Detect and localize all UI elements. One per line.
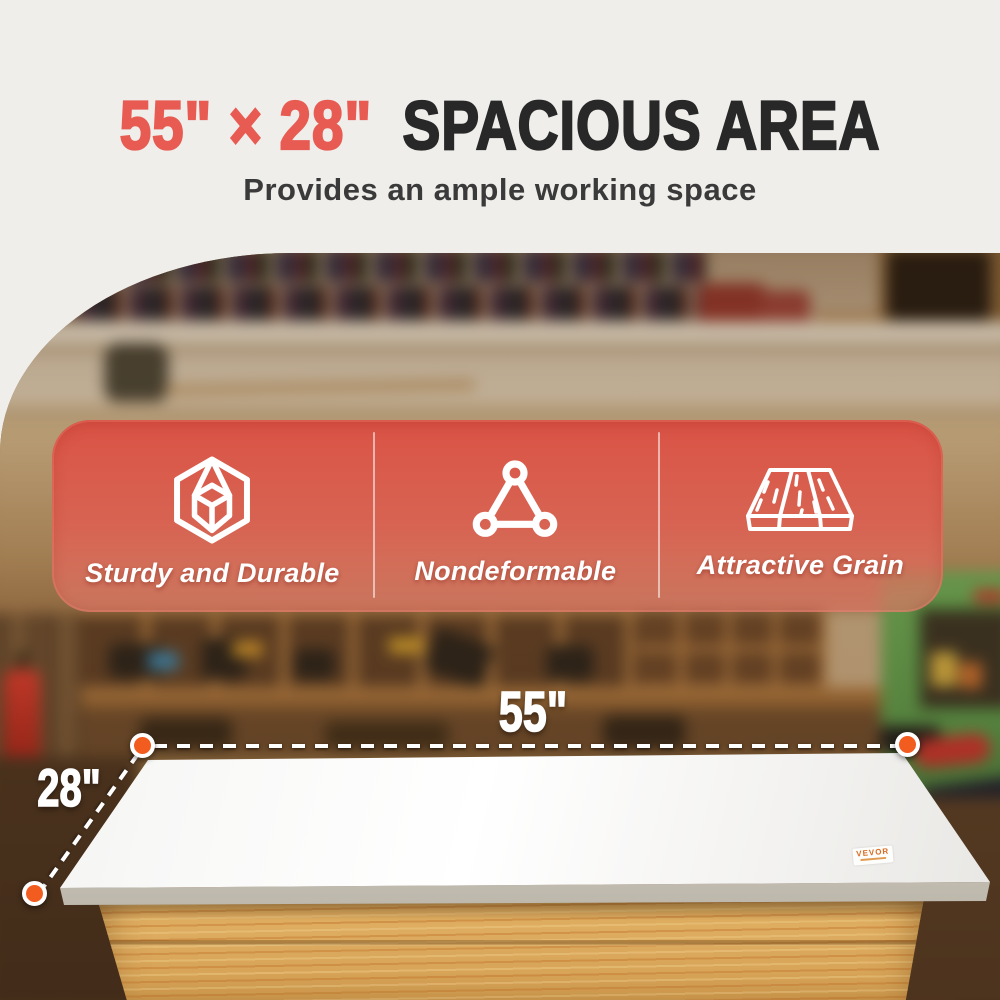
- feature-label: Nondeformable: [414, 556, 616, 587]
- green-board-opening: [915, 604, 1000, 713]
- yellow-tool: [232, 641, 263, 656]
- bins-row: [78, 286, 706, 320]
- yellow-tool: [389, 637, 424, 653]
- headline-subtitle: Provides an ample working space: [0, 172, 1000, 208]
- workshop-photo: Sturdy and Durable Nondeformable: [0, 253, 1000, 1000]
- banner-divider: [658, 432, 660, 598]
- hanging-tool: [104, 343, 168, 403]
- corner-marker-left: [130, 733, 155, 758]
- cabinet-seam: [97, 940, 924, 946]
- headline-row: 55" × 28" SPACIOUS AREA: [70, 91, 930, 160]
- corner-marker-front: [22, 881, 47, 906]
- corner-marker-right: [895, 732, 920, 757]
- bins-row: [78, 253, 706, 282]
- triangle-nodes-icon: [470, 454, 560, 546]
- feature-label: Attractive Grain: [697, 550, 904, 581]
- feature-nondeformable: Nondeformable: [373, 420, 658, 612]
- blue-tool: [148, 652, 179, 671]
- workshop-background: [0, 253, 1000, 1000]
- wood-cabinet: [97, 898, 924, 1000]
- parts-bins-shelf: [78, 253, 706, 330]
- yellow-bottle: [931, 652, 958, 687]
- feature-sturdy: Sturdy and Durable: [52, 420, 373, 612]
- width-dashed-line: [154, 744, 897, 748]
- banner-divider: [373, 432, 375, 598]
- brand-sticker: VEVOR: [852, 845, 893, 865]
- product-infographic: 55" × 28" SPACIOUS AREA Provides an ampl…: [0, 0, 1000, 1000]
- width-dimension-label: 55": [481, 679, 585, 744]
- cube-icon: [166, 452, 258, 548]
- fire-extinguisher: [4, 669, 41, 768]
- red-container: [699, 283, 767, 326]
- shelf-edge: [0, 401, 1000, 419]
- headline-dimensions: 55" × 28": [120, 87, 373, 164]
- orange-bottle: [959, 662, 982, 689]
- tool-blob: [546, 646, 593, 681]
- depth-dimension-label: 28": [25, 758, 113, 819]
- small-cubbies: [637, 613, 827, 689]
- wood-plank-icon: [739, 460, 861, 540]
- speaker-box: [887, 253, 990, 320]
- headline-title: SPACIOUS AREA: [402, 87, 880, 164]
- brand-logo: VEVOR: [852, 845, 893, 859]
- feature-grain: Attractive Grain: [658, 420, 943, 612]
- cabinet-shadow: [97, 898, 924, 920]
- feature-label: Sturdy and Durable: [85, 558, 339, 589]
- feature-banner: Sturdy and Durable Nondeformable: [52, 420, 943, 612]
- red-label: [974, 590, 1000, 602]
- tool-blob: [294, 649, 335, 680]
